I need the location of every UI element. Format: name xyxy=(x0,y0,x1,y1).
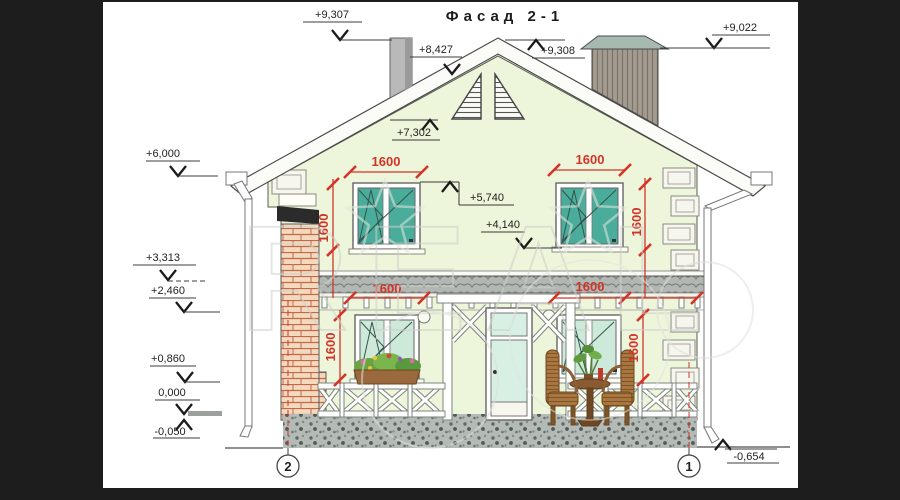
mark-0000: 0,000 xyxy=(155,387,222,416)
svg-text:+3,313: +3,313 xyxy=(146,252,180,264)
drawing-title: Фасад 2-1 xyxy=(446,8,564,25)
dim-upper-left-width: 1600 xyxy=(372,154,401,169)
screenshot-stage: 1600 1600 1600 1600 1600 1600 1600 1600 xyxy=(0,0,900,500)
mark-3313: +3,313 xyxy=(133,252,205,281)
flower-box-body xyxy=(354,370,420,384)
baluster xyxy=(374,383,378,417)
dim-upper-right-width: 1600 xyxy=(576,152,605,167)
svg-text:-0,050: -0,050 xyxy=(154,426,185,438)
svg-text:+2,460: +2,460 xyxy=(151,285,185,297)
mark-9307: +9,307 xyxy=(303,9,392,40)
svg-text:+8,427: +8,427 xyxy=(419,44,453,56)
mark-2460: +2,460 xyxy=(149,285,220,312)
bottom-rail xyxy=(318,411,445,417)
svg-text:+7,302: +7,302 xyxy=(397,127,431,139)
svg-text:+9,307: +9,307 xyxy=(315,9,349,21)
svg-text:+0,860: +0,860 xyxy=(151,353,185,365)
chimney-cap xyxy=(581,36,668,49)
baluster xyxy=(672,383,676,417)
axis-bubble-1: 1 xyxy=(678,448,700,477)
mark-6000: +6,000 xyxy=(146,148,218,176)
zero-level-bar xyxy=(188,411,222,416)
svg-text:2: 2 xyxy=(284,459,291,474)
gutter-end-right xyxy=(751,172,772,185)
baluster xyxy=(408,383,412,417)
svg-text:1: 1 xyxy=(685,459,692,474)
bottle xyxy=(598,368,603,380)
svg-text:+9,022: +9,022 xyxy=(723,22,757,34)
mark-9022: +9,022 xyxy=(660,22,770,48)
mark-8427: +8,427 xyxy=(410,44,462,74)
mark-0860: +0,860 xyxy=(150,353,220,382)
door-kick-panel xyxy=(491,402,527,416)
mark-0654: -0,654 xyxy=(715,440,779,463)
facade-drawing: 1600 1600 1600 1600 1600 1600 1600 1600 xyxy=(0,0,900,500)
baluster xyxy=(340,383,344,417)
svg-text:+6,000: +6,000 xyxy=(146,148,180,160)
baluster xyxy=(638,383,642,417)
watermark-text: REAL xyxy=(240,194,720,362)
svg-text:0,000: 0,000 xyxy=(158,387,186,399)
mark-0050: -0,050 xyxy=(153,420,200,438)
axis-bubble-2: 2 xyxy=(277,448,299,477)
svg-text:-0,654: -0,654 xyxy=(733,451,764,463)
svg-text:+9,308: +9,308 xyxy=(541,45,575,57)
